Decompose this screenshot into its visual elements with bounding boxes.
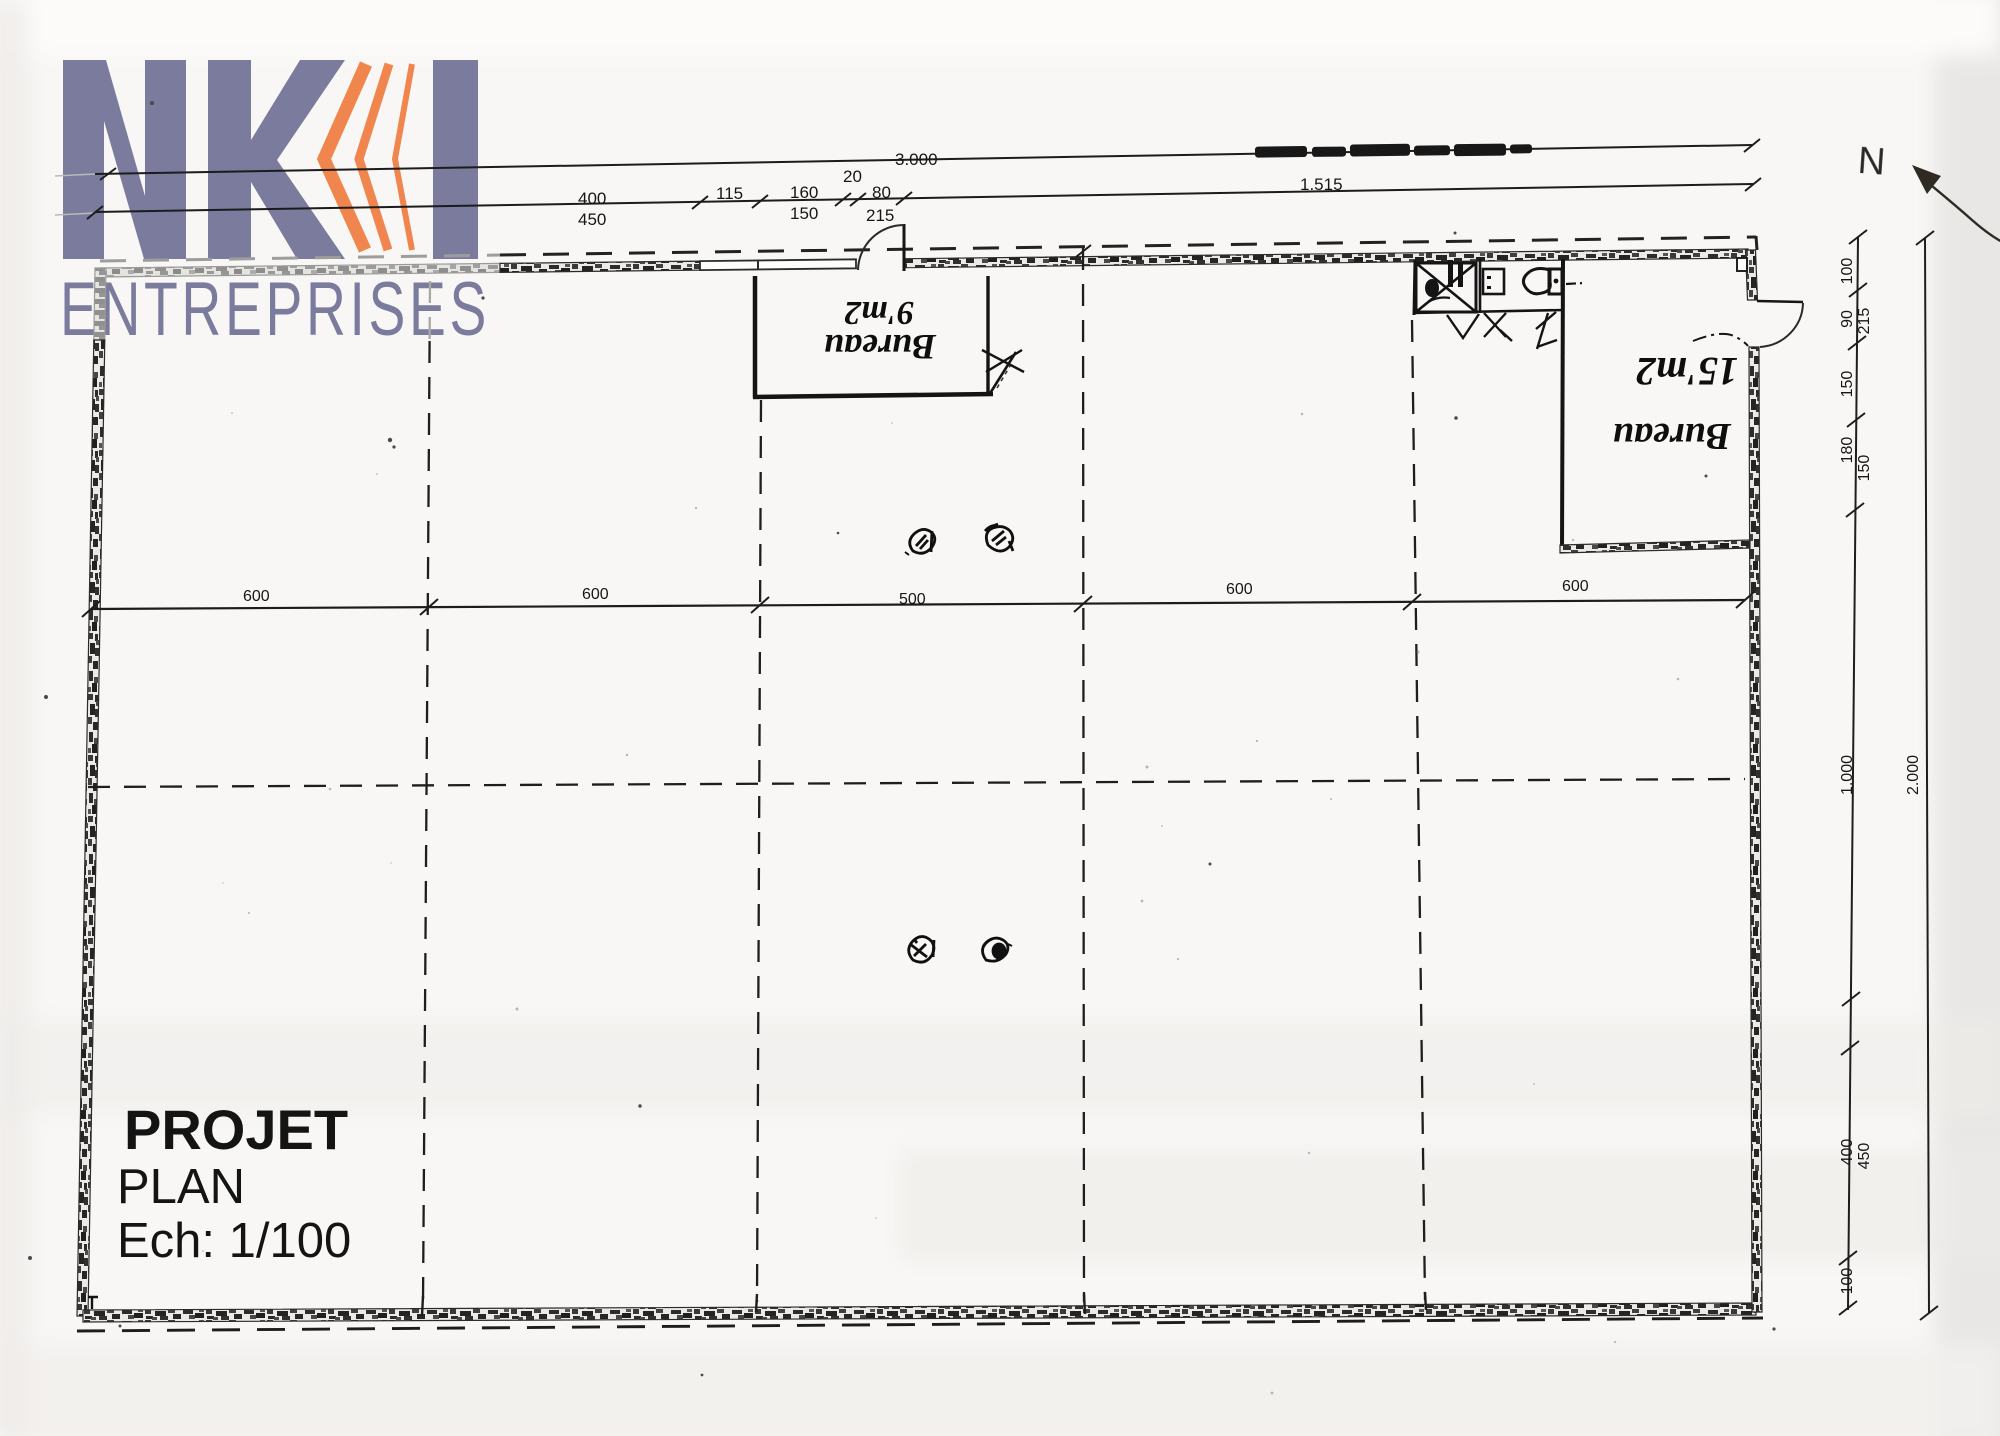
svg-text:15'm2: 15'm2	[1636, 349, 1738, 394]
svg-text:600: 600	[1562, 578, 1589, 595]
svg-text:180: 180	[1839, 437, 1856, 464]
svg-text:20: 20	[843, 167, 862, 186]
svg-text:Bureau: Bureau	[824, 327, 937, 367]
svg-text:Bureau: Bureau	[1613, 415, 1732, 457]
svg-text:160: 160	[790, 183, 818, 202]
svg-text:80: 80	[872, 183, 891, 202]
svg-text:215: 215	[1856, 308, 1873, 335]
svg-text:ENTREPRISES: ENTREPRISES	[60, 267, 490, 352]
svg-text:90: 90	[1839, 310, 1856, 328]
svg-text:150: 150	[1839, 371, 1856, 398]
svg-text:450: 450	[1856, 1143, 1873, 1170]
svg-text:9'm2: 9'm2	[844, 294, 914, 331]
svg-text:1.515: 1.515	[1300, 175, 1343, 194]
svg-text:3.000: 3.000	[895, 150, 938, 169]
svg-text:100: 100	[1839, 258, 1856, 285]
svg-text:Ech: 1/100: Ech: 1/100	[117, 1214, 351, 1268]
svg-text:215: 215	[866, 206, 894, 225]
svg-text:600: 600	[243, 588, 270, 605]
svg-text:115: 115	[716, 184, 743, 203]
svg-text:400: 400	[578, 189, 606, 208]
svg-text:N: N	[1856, 140, 1886, 184]
svg-text:150: 150	[790, 204, 818, 223]
svg-text:PLAN: PLAN	[117, 1160, 245, 1214]
svg-text:PROJET: PROJET	[124, 1098, 348, 1161]
svg-text:500: 500	[899, 591, 926, 608]
svg-text:1.000: 1.000	[1839, 755, 1856, 795]
svg-text:2.000: 2.000	[1905, 755, 1922, 795]
svg-text:600: 600	[582, 586, 609, 603]
svg-text:100: 100	[1839, 1268, 1856, 1295]
svg-text:400: 400	[1839, 1139, 1856, 1166]
svg-text:600: 600	[1226, 581, 1253, 598]
svg-text:150: 150	[1856, 455, 1873, 482]
svg-text:450: 450	[578, 210, 606, 229]
